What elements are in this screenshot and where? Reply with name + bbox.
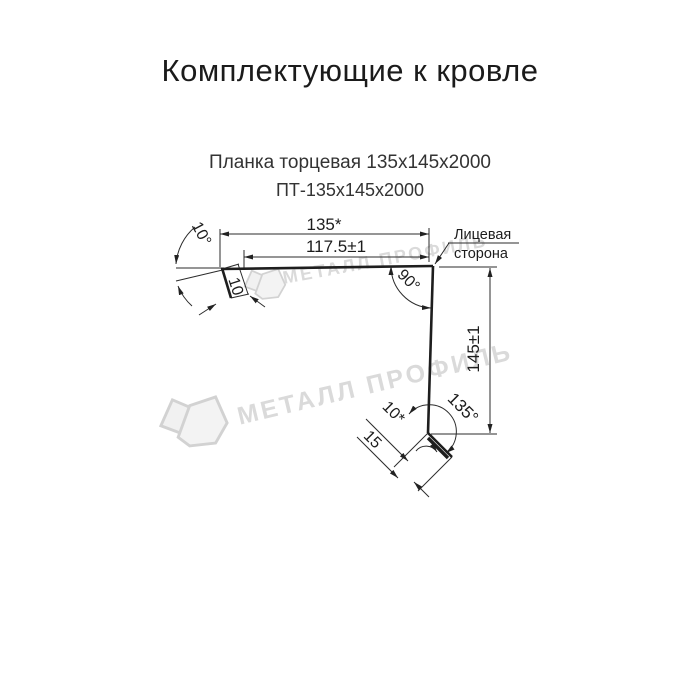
foot-dim-arrow <box>414 482 429 497</box>
angle-text-90: 90° <box>394 266 423 295</box>
hem-dim-arrow <box>250 296 265 307</box>
dim-text-117: 117.5±1 <box>306 237 366 256</box>
foot-extension-line <box>418 457 452 491</box>
dim-text-15: 15 <box>360 428 385 453</box>
profile-top-flange <box>221 266 433 269</box>
angle-135-arc <box>409 405 456 453</box>
hem-dim-arrow <box>199 304 216 315</box>
leader-line <box>435 243 449 264</box>
fold-direction-arc <box>416 446 437 452</box>
profile-foot-hem <box>428 438 448 458</box>
profile-vertical-face <box>428 266 433 433</box>
dim-text-10star: 10* <box>379 398 408 427</box>
dim-text-145: 145±1 <box>464 325 483 372</box>
profile-foot <box>428 433 452 457</box>
angle-text-10: 10° <box>188 219 214 248</box>
face-side-label: сторона <box>454 246 509 262</box>
technical-drawing: 135* 117.5±1 145±1 90° 135° 10° 10 10* 1… <box>0 0 700 700</box>
angle-10-arc <box>178 286 192 306</box>
angle-text-135: 135° <box>444 389 482 427</box>
dim-text-135: 135* <box>307 215 342 234</box>
face-side-label: Лицевая <box>454 227 511 243</box>
foot-extension-line <box>394 433 428 467</box>
